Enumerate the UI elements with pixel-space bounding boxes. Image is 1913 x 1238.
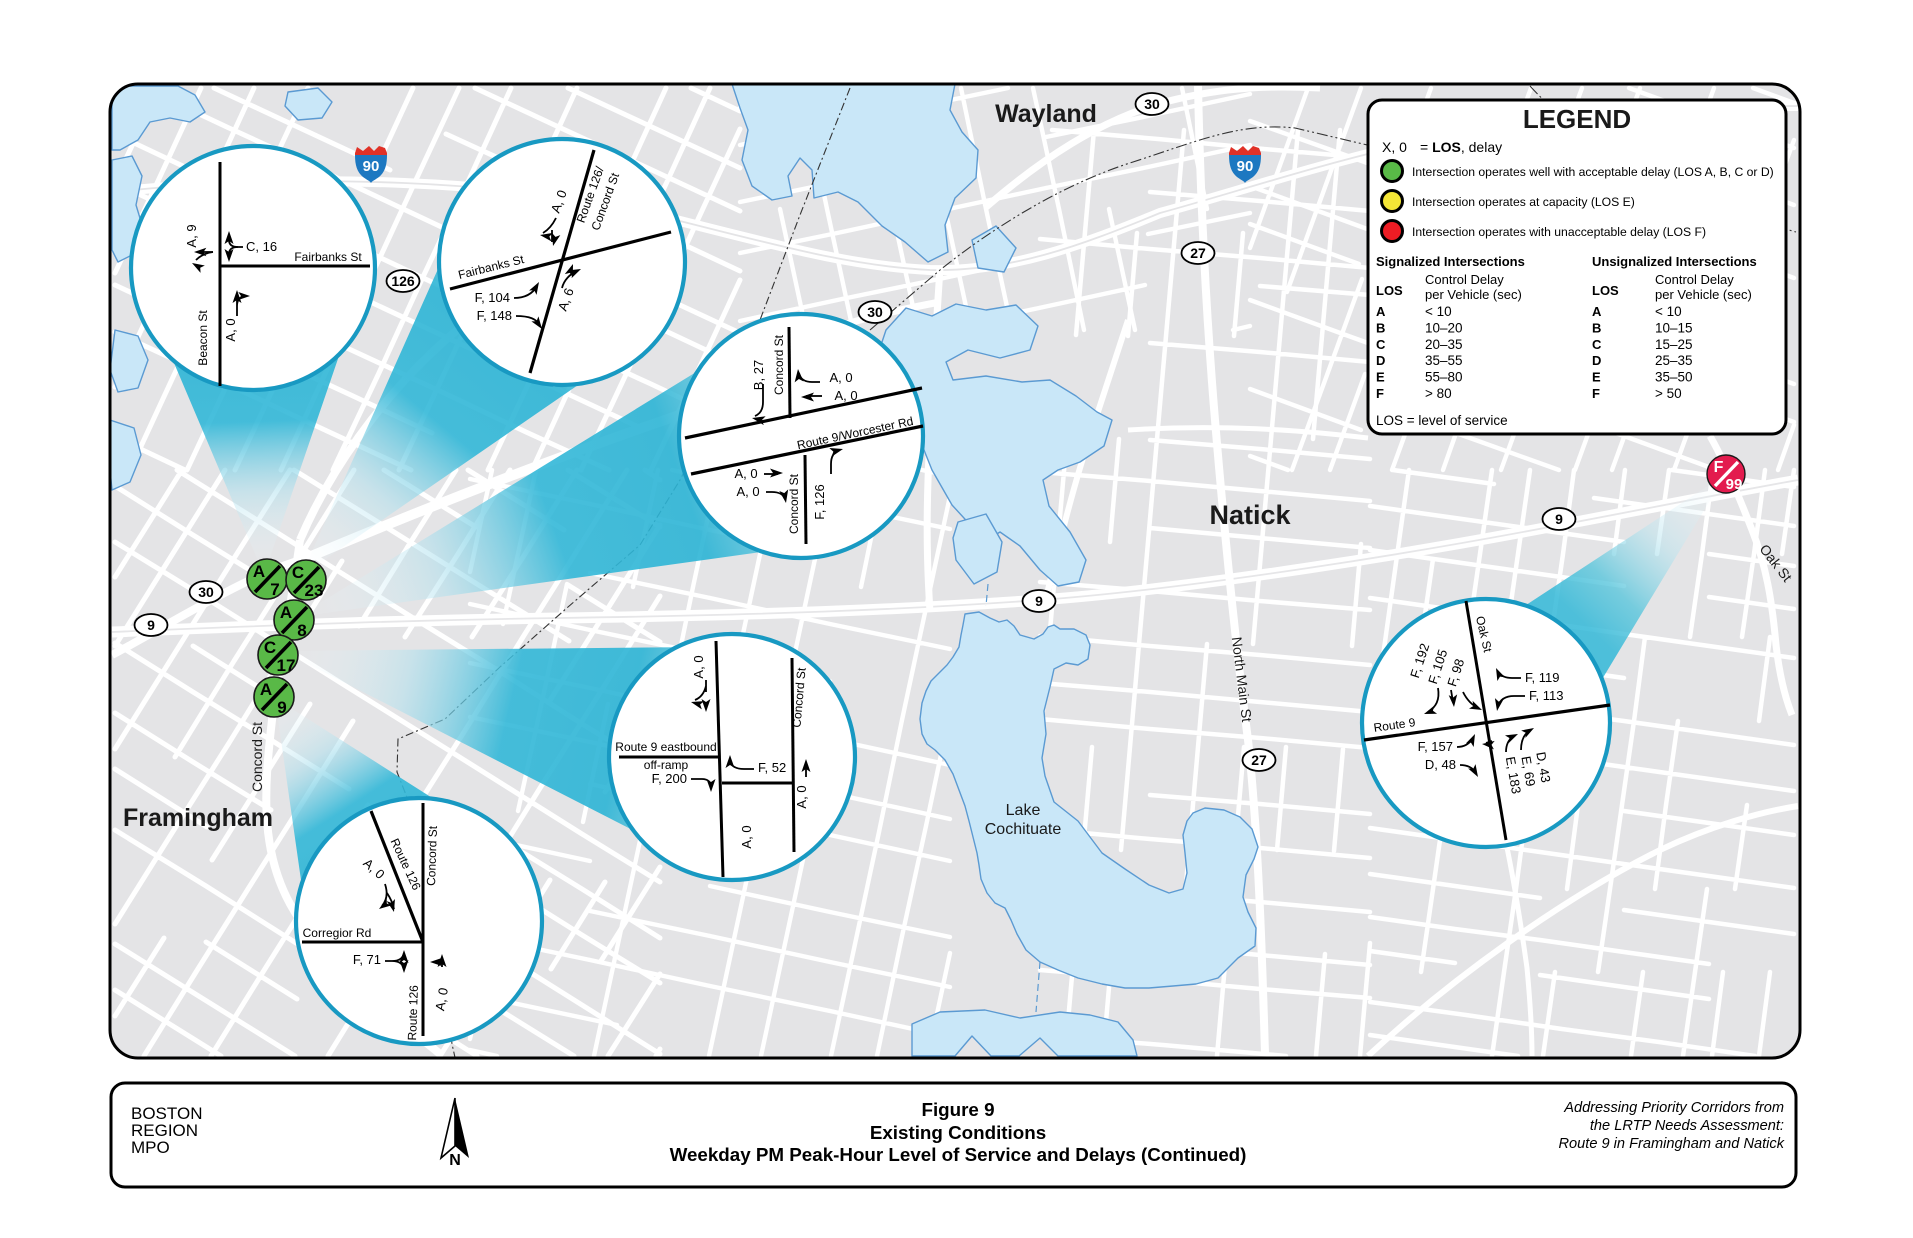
svg-text:A, 0: A, 0 <box>691 655 706 678</box>
svg-text:off-ramp: off-ramp <box>644 758 689 772</box>
svg-text:F, 200: F, 200 <box>652 771 687 786</box>
svg-text:= LOS, delay: = LOS, delay <box>1420 139 1502 155</box>
svg-text:30: 30 <box>1144 96 1160 112</box>
svg-text:< 10: < 10 <box>1425 304 1452 319</box>
svg-text:7: 7 <box>270 580 279 599</box>
svg-text:A, 0: A, 0 <box>829 370 852 385</box>
svg-text:the LRTP Needs Assessment:: the LRTP Needs Assessment: <box>1590 1118 1784 1134</box>
svg-text:A: A <box>260 680 272 699</box>
svg-text:Addressing Priority Corridors: Addressing Priority Corridors from <box>1563 1100 1784 1116</box>
svg-text:D: D <box>1376 353 1385 368</box>
svg-text:30: 30 <box>867 304 883 320</box>
svg-text:F, 126: F, 126 <box>812 484 827 519</box>
svg-text:F: F <box>1714 459 1724 476</box>
svg-text:N: N <box>449 1152 461 1169</box>
svg-text:90: 90 <box>1237 158 1254 175</box>
svg-text:Control Delay: Control Delay <box>1655 272 1734 287</box>
svg-text:A, 0: A, 0 <box>223 318 238 341</box>
svg-text:Route 126: Route 126 <box>405 985 421 1041</box>
svg-text:E: E <box>1376 370 1385 385</box>
svg-text:23: 23 <box>305 581 324 600</box>
svg-text:Figure 9: Figure 9 <box>921 1099 994 1120</box>
svg-text:C: C <box>1376 337 1386 352</box>
svg-text:B: B <box>1592 320 1601 335</box>
svg-text:Cochituate: Cochituate <box>985 821 1062 838</box>
svg-text:A: A <box>1592 304 1602 319</box>
svg-text:30: 30 <box>198 584 214 600</box>
svg-text:A, 0: A, 0 <box>834 388 857 403</box>
svg-text:Lake: Lake <box>1006 802 1041 819</box>
svg-text:X, 0: X, 0 <box>1382 139 1407 155</box>
svg-text:MPO: MPO <box>131 1138 170 1157</box>
svg-text:9: 9 <box>1035 593 1043 609</box>
svg-text:25–35: 25–35 <box>1655 353 1693 368</box>
svg-text:Route 9 in Framingham and Nati: Route 9 in Framingham and Natick <box>1559 1136 1785 1152</box>
svg-text:Concord St: Concord St <box>249 722 265 792</box>
svg-text:Beacon St: Beacon St <box>196 310 210 366</box>
svg-text:A, 0: A, 0 <box>794 785 809 808</box>
svg-text:9: 9 <box>277 698 286 717</box>
svg-text:90: 90 <box>363 158 380 175</box>
svg-text:Unsignalized Intersections: Unsignalized Intersections <box>1592 254 1757 269</box>
svg-text:D, 48: D, 48 <box>1425 757 1456 772</box>
svg-text:A, 0: A, 0 <box>734 466 757 481</box>
svg-text:F, 113: F, 113 <box>1529 688 1563 703</box>
svg-text:A, 9: A, 9 <box>184 224 199 247</box>
svg-text:> 80: > 80 <box>1425 386 1452 401</box>
svg-text:17: 17 <box>277 656 296 675</box>
svg-text:Control Delay: Control Delay <box>1425 272 1504 287</box>
svg-text:126: 126 <box>391 273 415 289</box>
svg-text:Signalized Intersections: Signalized Intersections <box>1376 254 1525 269</box>
svg-text:LOS: LOS <box>1592 283 1619 298</box>
svg-text:LEGEND: LEGEND <box>1523 104 1631 134</box>
svg-text:Fairbanks St: Fairbanks St <box>294 250 362 264</box>
svg-text:> 50: > 50 <box>1655 386 1682 401</box>
svg-text:8: 8 <box>297 621 306 640</box>
svg-text:C: C <box>292 563 304 582</box>
svg-text:20–35: 20–35 <box>1425 337 1463 352</box>
svg-text:Wayland: Wayland <box>995 100 1097 128</box>
svg-text:A, 0: A, 0 <box>739 825 754 848</box>
svg-text:F, 148: F, 148 <box>477 308 512 323</box>
svg-text:35–50: 35–50 <box>1655 370 1693 385</box>
svg-text:F, 71: F, 71 <box>353 952 381 967</box>
svg-text:F, 52: F, 52 <box>758 760 786 775</box>
svg-text:C: C <box>264 638 276 657</box>
svg-text:Concord St: Concord St <box>424 825 440 886</box>
svg-text:10–20: 10–20 <box>1425 320 1463 335</box>
svg-text:Concord St: Concord St <box>772 334 786 395</box>
svg-text:F, 104: F, 104 <box>475 290 510 305</box>
svg-text:55–80: 55–80 <box>1425 370 1463 385</box>
svg-text:Corregior Rd: Corregior Rd <box>303 926 372 940</box>
svg-text:Route 9 eastbound: Route 9 eastbound <box>615 740 716 754</box>
svg-text:99: 99 <box>1726 476 1743 493</box>
svg-text:15–25: 15–25 <box>1655 337 1693 352</box>
svg-text:D: D <box>1592 353 1601 368</box>
svg-text:9: 9 <box>147 617 155 633</box>
svg-text:A: A <box>280 603 292 622</box>
svg-text:35–55: 35–55 <box>1425 353 1463 368</box>
svg-text:Intersection operates with una: Intersection operates with unacceptable … <box>1412 225 1706 239</box>
svg-text:< 10: < 10 <box>1655 304 1682 319</box>
svg-text:Framingham: Framingham <box>123 804 273 832</box>
svg-text:F, 119: F, 119 <box>1525 670 1559 685</box>
svg-text:9: 9 <box>1555 511 1563 527</box>
svg-text:per Vehicle (sec): per Vehicle (sec) <box>1655 287 1752 302</box>
svg-text:Natick: Natick <box>1209 500 1291 530</box>
svg-text:Intersection operates well wit: Intersection operates well with acceptab… <box>1412 165 1774 179</box>
svg-text:Intersection operates at capac: Intersection operates at capacity (LOS E… <box>1412 195 1635 209</box>
svg-text:C: C <box>1592 337 1602 352</box>
svg-text:F: F <box>1592 386 1600 401</box>
svg-text:C, 16: C, 16 <box>246 239 277 254</box>
svg-text:F, 157: F, 157 <box>1418 739 1453 754</box>
svg-text:A: A <box>253 562 265 581</box>
svg-text:per Vehicle (sec): per Vehicle (sec) <box>1425 287 1522 302</box>
svg-text:Concord St: Concord St <box>787 473 801 534</box>
svg-text:A, 0: A, 0 <box>736 484 759 499</box>
svg-text:A: A <box>1376 304 1386 319</box>
svg-text:Existing Conditions: Existing Conditions <box>870 1122 1046 1143</box>
svg-text:LOS = level of service: LOS = level of service <box>1376 413 1508 428</box>
svg-text:10–15: 10–15 <box>1655 320 1693 335</box>
svg-text:B: B <box>1376 320 1385 335</box>
svg-text:Weekday PM Peak-Hour Level of: Weekday PM Peak-Hour Level of Service an… <box>670 1144 1247 1165</box>
svg-text:27: 27 <box>1251 752 1267 768</box>
svg-text:E: E <box>1592 370 1601 385</box>
svg-text:27: 27 <box>1190 245 1206 261</box>
svg-text:F: F <box>1376 386 1384 401</box>
svg-text:LOS: LOS <box>1376 283 1403 298</box>
